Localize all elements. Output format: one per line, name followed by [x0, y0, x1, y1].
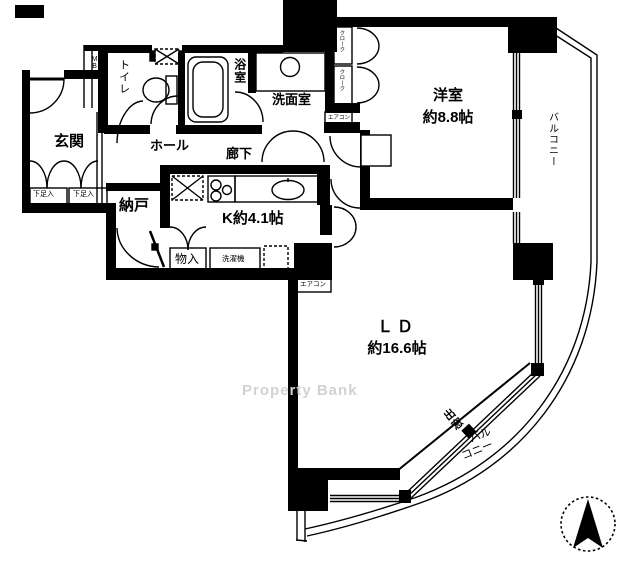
label-washroom: 洗面室	[272, 93, 311, 108]
label-bath: 浴室	[232, 58, 246, 92]
label-western-room: 洋室 約8.8帖	[398, 87, 498, 127]
label-shoe-box-left: 下足入	[33, 191, 54, 199]
label-cloak-upper: クローク	[338, 30, 344, 63]
watermark: Property Bank	[242, 382, 358, 399]
label-corridor: 廊下	[226, 147, 252, 162]
label-cloak-lower: クローク	[338, 69, 344, 102]
label-western-room-name: 洋室	[398, 87, 498, 104]
label-hall: ホール	[150, 139, 189, 154]
label-kitchen: K約4.1帖	[222, 210, 284, 227]
label-balcony-right: バルコニー	[546, 112, 558, 194]
label-ld-size: 約16.6帖	[342, 340, 452, 357]
label-mono-ire: 物入	[175, 253, 199, 267]
label-aircon-ld: エアコン	[300, 281, 326, 288]
label-washing-machine: 洗濯機	[222, 255, 245, 264]
floorplan: Property Bank 玄関 トイレ 浴室 洗面室 ホール 廊下 納戸 K約…	[0, 0, 640, 569]
label-shoe-box-right: 下足入	[73, 191, 94, 199]
label-toilet: トイレ	[117, 59, 130, 113]
label-nando: 納戸	[119, 197, 149, 214]
compass-north-icon	[561, 497, 615, 551]
label-western-room-size: 約8.8帖	[398, 109, 498, 126]
label-ld-name: ＬＤ	[342, 319, 452, 337]
label-aircon-west-room: エアコン	[328, 115, 350, 121]
label-genkan: 玄関	[40, 133, 98, 150]
label-ld: ＬＤ 約16.6帖	[342, 319, 452, 358]
label-meter-box: MB	[90, 56, 98, 76]
